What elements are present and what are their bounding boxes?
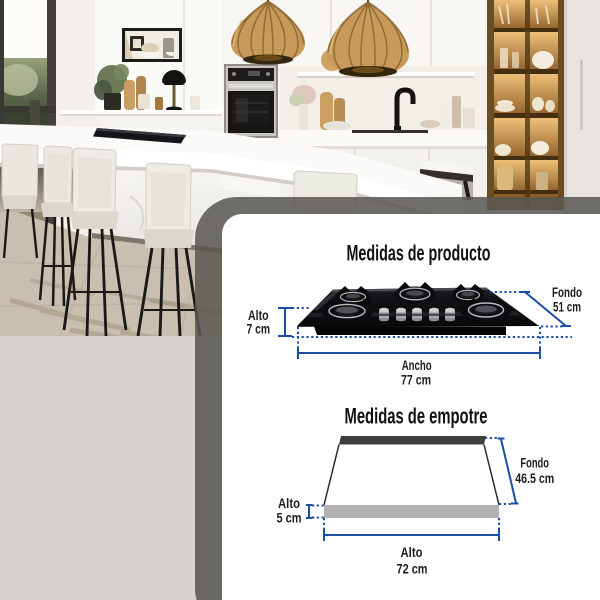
svg-text:51 cm: 51 cm (553, 300, 581, 315)
svg-text:Ancho: Ancho (402, 358, 432, 373)
svg-text:Fondo: Fondo (552, 285, 582, 300)
svg-text:72 cm: 72 cm (397, 562, 428, 577)
svg-text:Alto: Alto (278, 496, 300, 511)
svg-text:46.5 cm: 46.5 cm (515, 471, 554, 486)
svg-text:7 cm: 7 cm (247, 322, 271, 337)
svg-text:Medidas de producto: Medidas de producto (347, 241, 491, 266)
svg-text:Medidas de empotre: Medidas de empotre (345, 403, 488, 428)
svg-text:77 cm: 77 cm (401, 373, 431, 388)
svg-text:Fondo: Fondo (520, 456, 549, 471)
svg-text:5 cm: 5 cm (277, 511, 302, 526)
svg-text:Alto: Alto (401, 545, 423, 560)
